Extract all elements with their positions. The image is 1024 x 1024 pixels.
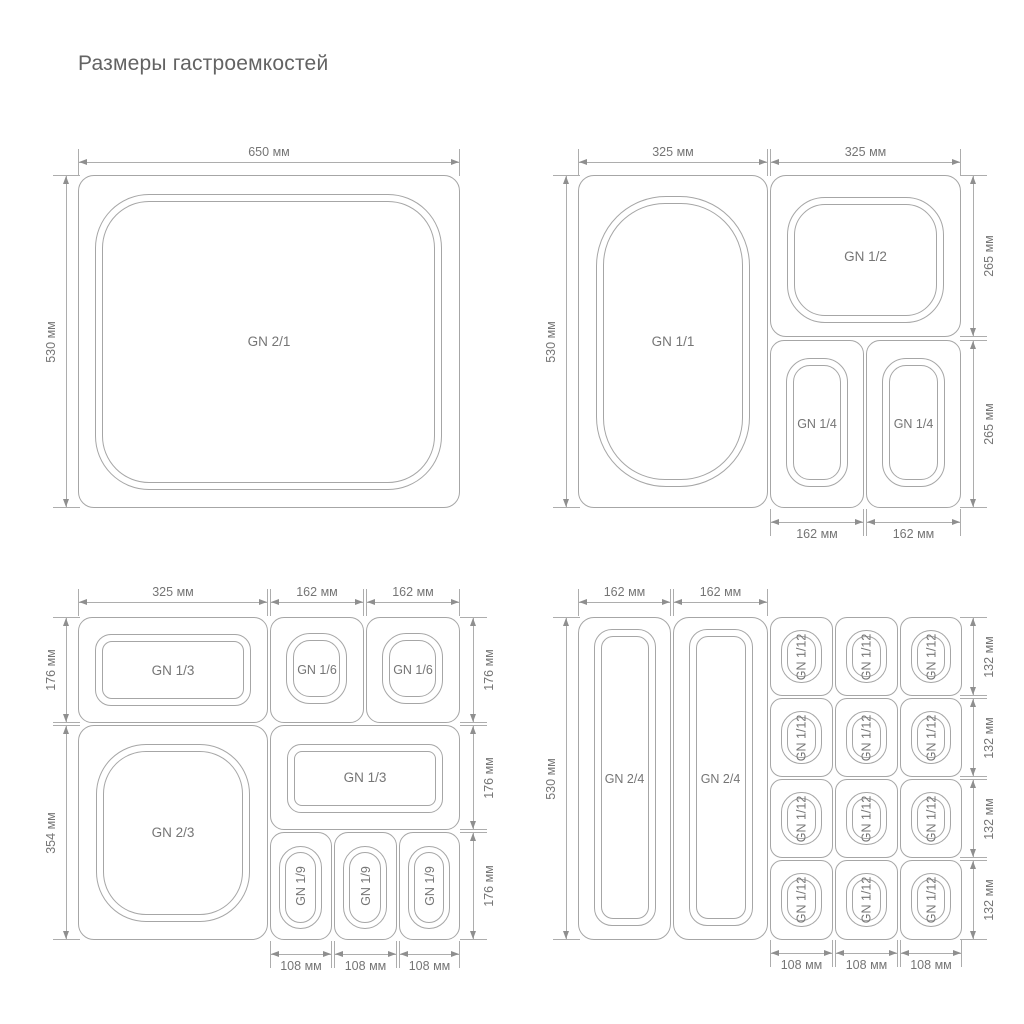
dimension-width-108: 108 мм [770,953,833,954]
container-gn-1-12: GN 1/12 [770,860,833,940]
dimension-height-176: 176 мм [66,617,67,723]
dimension-width-325: 325 мм [578,162,768,163]
dimension-height-354: 354 мм [66,725,67,940]
container-label: GN 1/12 [836,861,897,939]
dimension-height-132: 132 мм [973,860,974,940]
dimension-height-132: 132 мм [973,698,974,777]
container-gn-1-12: GN 1/12 [900,617,962,696]
container-gn-1-12: GN 1/12 [770,617,833,696]
container-label: GN 1/9 [400,833,459,939]
container-label: GN 1/12 [771,861,832,939]
container-label: GN 1/1 [579,176,767,507]
container-gn-1-12: GN 1/12 [900,860,962,940]
dimension-height-530: 530 мм [566,617,567,940]
container-label: GN 2/3 [79,726,267,939]
container-label: GN 2/1 [79,176,459,507]
dimension-width-325: 325 мм [78,602,268,603]
container-gn-1-12: GN 1/12 [900,779,962,858]
container-gn-2-1: GN 2/1 [78,175,460,508]
container-label: GN 1/9 [271,833,331,939]
dimension-height-530: 530 мм [66,175,67,508]
diagram-canvas: Размеры гастроемкостей GN 2/1 650 мм 530… [0,0,1024,1024]
container-gn-1-3: GN 1/3 [270,725,460,830]
container-gn-1-9: GN 1/9 [270,832,332,940]
container-gn-1-12: GN 1/12 [770,779,833,858]
container-label: GN 1/3 [271,726,459,829]
container-gn-1-12: GN 1/12 [900,698,962,777]
container-label: GN 1/12 [901,861,961,939]
dimension-height-265: 265 мм [973,340,974,508]
container-label: GN 1/12 [836,780,897,857]
container-label: GN 1/6 [367,618,459,722]
container-gn-2-3: GN 2/3 [78,725,268,940]
dimension-width-325: 325 мм [770,162,961,163]
container-label: GN 1/12 [771,780,832,857]
dimension-height-176: 176 мм [473,832,474,940]
dimension-width-108: 108 мм [334,954,397,955]
container-gn-1-1: GN 1/1 [578,175,768,508]
container-gn-1-6: GN 1/6 [270,617,364,723]
container-gn-1-9: GN 1/9 [334,832,397,940]
dimension-width-108: 108 мм [399,954,460,955]
dimension-width-650: 650 мм [78,162,460,163]
dimension-width-162: 162 мм [866,522,961,523]
dimension-height-265: 265 мм [973,175,974,337]
dimension-height-176: 176 мм [473,725,474,830]
dimension-height-176: 176 мм [473,617,474,723]
page-title: Размеры гастроемкостей [78,52,328,76]
dimension-height-132: 132 мм [973,617,974,696]
container-gn-1-2: GN 1/2 [770,175,961,337]
container-gn-1-12: GN 1/12 [835,698,898,777]
container-gn-1-9: GN 1/9 [399,832,460,940]
container-gn-1-4: GN 1/4 [866,340,961,508]
dimension-height-132: 132 мм [973,779,974,858]
dimension-height-530: 530 мм [566,175,567,508]
dimension-width-108: 108 мм [270,954,332,955]
container-label: GN 1/12 [771,618,832,695]
container-label: GN 1/3 [79,618,267,722]
container-label: GN 1/12 [901,699,961,776]
dimension-width-162: 162 мм [770,522,864,523]
container-gn-1-12: GN 1/12 [835,779,898,858]
container-label: GN 1/4 [771,341,863,507]
container-label: GN 2/4 [674,618,767,939]
container-gn-1-3: GN 1/3 [78,617,268,723]
dimension-width-162: 162 мм [578,602,671,603]
container-label: GN 1/12 [901,780,961,857]
container-gn-2-4: GN 2/4 [578,617,671,940]
container-gn-1-4: GN 1/4 [770,340,864,508]
container-label: GN 1/6 [271,618,363,722]
container-label: GN 2/4 [579,618,670,939]
container-gn-1-12: GN 1/12 [835,617,898,696]
container-label: GN 1/12 [836,618,897,695]
container-gn-1-12: GN 1/12 [770,698,833,777]
container-gn-1-12: GN 1/12 [835,860,898,940]
dimension-width-162: 162 мм [270,602,364,603]
container-label: GN 1/9 [335,833,396,939]
dimension-width-162: 162 мм [673,602,768,603]
container-label: GN 1/12 [901,618,961,695]
container-gn-2-4: GN 2/4 [673,617,768,940]
container-label: GN 1/12 [771,699,832,776]
container-gn-1-6: GN 1/6 [366,617,460,723]
container-label: GN 1/2 [771,176,960,336]
container-label: GN 1/4 [867,341,960,507]
dimension-width-108: 108 мм [835,953,898,954]
container-label: GN 1/12 [836,699,897,776]
dimension-width-108: 108 мм [900,953,962,954]
dimension-width-162: 162 мм [366,602,460,603]
